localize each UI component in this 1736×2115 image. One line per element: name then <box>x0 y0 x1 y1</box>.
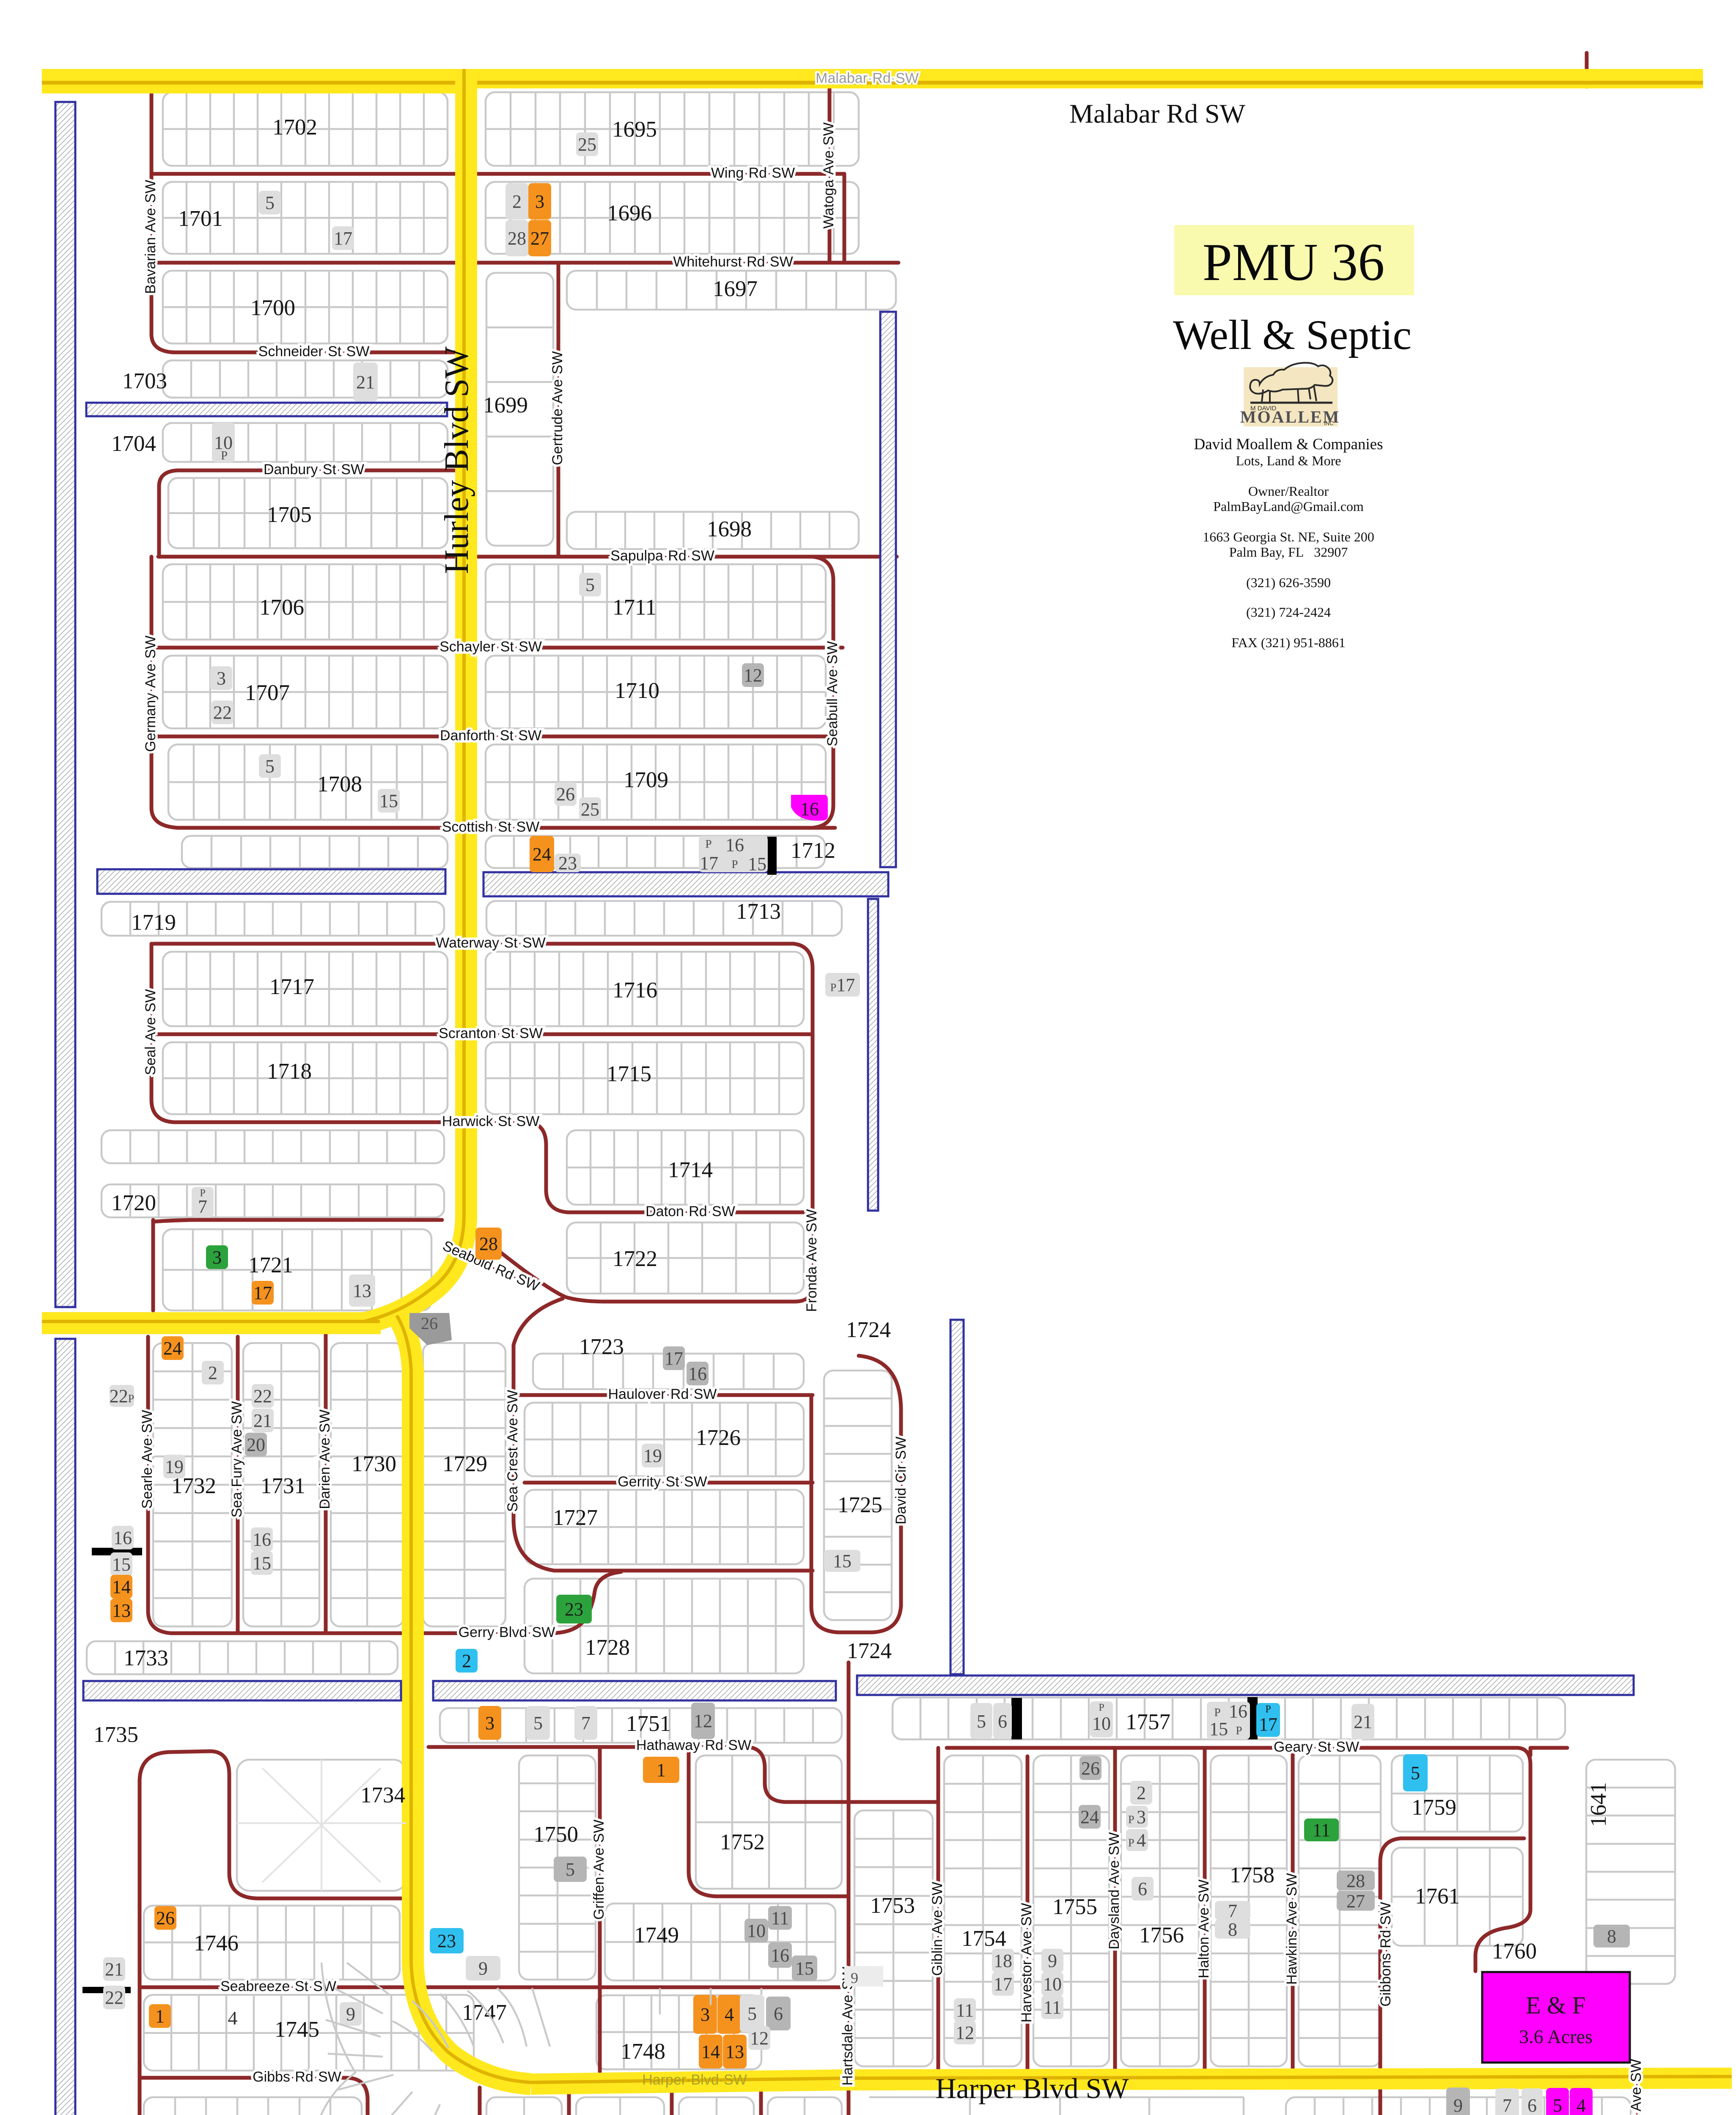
svg-text:Daton·Rd·SW: Daton·Rd·SW <box>646 1203 735 1220</box>
svg-text:17: 17 <box>1259 1714 1277 1735</box>
svg-text:24: 24 <box>163 1338 182 1359</box>
svg-text:1711: 1711 <box>613 595 656 620</box>
svg-text:Danforth·St·SW: Danforth·St·SW <box>440 728 541 744</box>
svg-text:22: 22 <box>213 702 232 723</box>
svg-text:7: 7 <box>1228 1901 1237 1921</box>
svg-text:1735: 1735 <box>93 1722 138 1747</box>
svg-text:5: 5 <box>977 1711 986 1732</box>
svg-text:23: 23 <box>565 1599 583 1620</box>
svg-text:INC: INC <box>1324 420 1333 426</box>
svg-text:Malabar Rd SW: Malabar Rd SW <box>1069 99 1246 129</box>
svg-text:1750: 1750 <box>533 1822 578 1847</box>
svg-text:Gibbons·Rd·SW: Gibbons·Rd·SW <box>1378 1902 1394 2007</box>
svg-text:David Moallem & Companies: David Moallem & Companies <box>1194 436 1383 453</box>
svg-text:9: 9 <box>1048 1950 1057 1971</box>
svg-text:11: 11 <box>1044 1997 1061 2018</box>
svg-text:(321) 724-2424: (321) 724-2424 <box>1246 604 1331 620</box>
svg-text:5: 5 <box>585 574 595 595</box>
svg-text:Well & Septic: Well & Septic <box>1173 311 1412 358</box>
svg-text:PMU 36: PMU 36 <box>1203 233 1385 292</box>
svg-text:1715: 1715 <box>607 1062 651 1086</box>
svg-text:P: P <box>1265 1704 1271 1715</box>
svg-text:6: 6 <box>1138 1879 1147 1899</box>
svg-text:1710: 1710 <box>615 678 659 703</box>
svg-text:12: 12 <box>694 1711 712 1731</box>
svg-text:11: 11 <box>956 2000 974 2021</box>
svg-text:Gertrude·Ave·SW: Gertrude·Ave·SW <box>549 351 566 465</box>
svg-text:1746: 1746 <box>194 1931 239 1956</box>
svg-text:Germany·Ave·SW: Germany·Ave·SW <box>143 635 159 752</box>
svg-text:1751: 1751 <box>626 1711 671 1736</box>
svg-text:1745: 1745 <box>275 2017 319 2042</box>
svg-text:16: 16 <box>725 835 744 855</box>
svg-text:5: 5 <box>1553 2095 1562 2115</box>
svg-text:Scottish·St·SW: Scottish·St·SW <box>442 819 540 835</box>
svg-text:Harvestor·Ave·SW: Harvestor·Ave·SW <box>1019 1903 1035 2023</box>
svg-text:5: 5 <box>747 2003 757 2024</box>
svg-text:FAX (321) 951-8861: FAX (321) 951-8861 <box>1231 635 1346 650</box>
svg-text:Haulover·Rd·SW: Haulover·Rd·SW <box>608 1386 717 1402</box>
svg-text:11: 11 <box>771 1908 789 1928</box>
svg-text:18: 18 <box>994 1950 1012 1971</box>
svg-text:3: 3 <box>700 2004 710 2025</box>
svg-text:Malabar·Rd·SW: Malabar·Rd·SW <box>816 70 919 86</box>
svg-text:13: 13 <box>112 1600 131 1621</box>
svg-text:5: 5 <box>533 1713 543 1733</box>
svg-text:21: 21 <box>105 1959 124 1980</box>
svg-text:Harper Blvd SW: Harper Blvd SW <box>935 2072 1129 2104</box>
svg-text:Hathaway·Rd·SW: Hathaway·Rd·SW <box>636 1737 751 1753</box>
svg-text:6: 6 <box>998 1711 1007 1732</box>
svg-text:Wing·Rd·SW: Wing·Rd·SW <box>711 165 795 181</box>
svg-text:Whitehurst·Rd·SW: Whitehurst·Rd·SW <box>673 254 793 270</box>
svg-text:1663 Georgia St. NE, Suite 200: 1663 Georgia St. NE, Suite 200 <box>1203 529 1374 544</box>
svg-text:1760: 1760 <box>1492 1939 1537 1964</box>
svg-text:2: 2 <box>462 1651 471 1671</box>
svg-text:1719: 1719 <box>131 910 176 935</box>
svg-text:Gerrity·St·SW: Gerrity·St·SW <box>618 1474 707 1490</box>
svg-text:1754: 1754 <box>961 1926 1006 1951</box>
svg-text:3: 3 <box>535 191 544 212</box>
svg-text:Geary·St·SW: Geary·St·SW <box>1274 1739 1359 1755</box>
svg-text:20: 20 <box>247 1434 265 1455</box>
svg-text:Gerry·Blvd·SW: Gerry·Blvd·SW <box>459 1624 555 1640</box>
svg-text:1757: 1757 <box>1126 1710 1170 1734</box>
svg-text:1641: 1641 <box>1586 1782 1611 1827</box>
svg-text:1716: 1716 <box>613 978 657 1003</box>
svg-text:15: 15 <box>253 1553 271 1574</box>
svg-text:8: 8 <box>1607 1926 1616 1947</box>
svg-text:15: 15 <box>748 854 766 874</box>
svg-text:9: 9 <box>346 2004 355 2024</box>
svg-text:(321) 626-3590: (321) 626-3590 <box>1246 575 1331 590</box>
svg-text:Gibbs·Rd·SW: Gibbs·Rd·SW <box>253 2069 341 2085</box>
svg-text:1: 1 <box>656 1760 666 1780</box>
svg-text:1744: 1744 <box>287 2112 332 2115</box>
svg-text:1723: 1723 <box>579 1335 624 1359</box>
svg-text:1759: 1759 <box>1412 1795 1456 1820</box>
svg-text:Hawkins·Ave·SW: Hawkins·Ave·SW <box>1284 1873 1300 1985</box>
svg-text:P: P <box>1214 1706 1220 1719</box>
svg-text:1728: 1728 <box>585 1635 630 1660</box>
svg-text:PalmBayLand@Gmail.com: PalmBayLand@Gmail.com <box>1213 499 1364 514</box>
svg-text:14: 14 <box>112 1577 131 1597</box>
svg-text:1753: 1753 <box>870 1893 915 1918</box>
svg-text:12: 12 <box>750 2028 769 2049</box>
svg-text:1709: 1709 <box>624 768 668 792</box>
svg-text:14: 14 <box>701 2041 720 2062</box>
svg-text:1718: 1718 <box>267 1059 312 1084</box>
svg-text:1755: 1755 <box>1052 1895 1097 1919</box>
svg-text:1703: 1703 <box>122 369 167 393</box>
svg-text:16: 16 <box>800 799 819 819</box>
svg-text:1699: 1699 <box>483 393 528 418</box>
svg-text:1749: 1749 <box>634 1923 679 1947</box>
svg-text:10: 10 <box>747 1920 766 1941</box>
svg-text:1734: 1734 <box>360 1783 405 1807</box>
svg-text:Sea·Crest·Ave·SW: Sea·Crest·Ave·SW <box>505 1390 521 1512</box>
svg-text:17: 17 <box>665 1348 683 1369</box>
svg-text:25: 25 <box>578 134 596 155</box>
svg-text:24: 24 <box>533 844 551 865</box>
svg-text:1733: 1733 <box>124 1646 168 1670</box>
svg-text:3.6 Acres: 3.6 Acres <box>1519 2026 1593 2047</box>
svg-text:16: 16 <box>253 1529 271 1550</box>
svg-text:1721: 1721 <box>248 1253 293 1277</box>
svg-text:Halton·Ave·SW: Halton·Ave·SW <box>1196 1879 1212 1978</box>
svg-text:7: 7 <box>1503 2095 1512 2115</box>
svg-text:26: 26 <box>556 784 575 805</box>
svg-text:Palm Bay, FL 32907: Palm Bay, FL 32907 <box>1229 544 1348 560</box>
svg-text:21: 21 <box>253 1410 272 1431</box>
svg-text:15: 15 <box>833 1551 852 1571</box>
svg-text:Schneider·St·SW: Schneider·St·SW <box>258 343 370 360</box>
svg-text:Danbury·St·SW: Danbury·St·SW <box>264 461 364 478</box>
svg-text:1725: 1725 <box>838 1493 882 1517</box>
svg-text:16: 16 <box>113 1527 132 1548</box>
svg-text:12: 12 <box>956 2022 974 2043</box>
svg-text:28: 28 <box>508 228 526 249</box>
svg-text:28: 28 <box>1346 1871 1365 1891</box>
svg-text:19: 19 <box>643 1445 662 1466</box>
svg-text:17: 17 <box>334 228 352 249</box>
svg-text:Lots, Land & More: Lots, Land & More <box>1236 453 1341 468</box>
svg-text:1700: 1700 <box>250 296 295 320</box>
svg-text:23: 23 <box>558 853 577 873</box>
svg-text:15: 15 <box>795 1958 814 1979</box>
svg-text:Sea·Fury·Ave·SW: Sea·Fury·Ave·SW <box>229 1401 245 1517</box>
svg-text:1696: 1696 <box>607 201 652 225</box>
svg-text:26: 26 <box>1081 1758 1100 1779</box>
svg-text:Watoga·Ave·SW: Watoga·Ave·SW <box>821 122 837 228</box>
svg-text:David·Cir·SW: David·Cir·SW <box>893 1437 909 1524</box>
svg-text:2: 2 <box>512 191 522 212</box>
svg-text:Sapulpa·Rd·SW: Sapulpa·Rd·SW <box>610 548 714 564</box>
svg-text:P: P <box>705 838 711 850</box>
svg-text:3: 3 <box>217 668 226 689</box>
svg-text:1695: 1695 <box>612 117 657 142</box>
svg-text:1722: 1722 <box>613 1247 657 1271</box>
svg-text:P: P <box>1099 1702 1104 1713</box>
svg-text:1730: 1730 <box>352 1452 396 1476</box>
svg-text:16: 16 <box>771 1945 789 1966</box>
svg-text:27: 27 <box>530 228 549 249</box>
svg-text:1: 1 <box>155 2006 165 2027</box>
svg-text:1761: 1761 <box>1415 1884 1460 1909</box>
svg-text:Seabull·Ave·SW: Seabull·Ave·SW <box>824 641 841 747</box>
svg-text:17: 17 <box>700 853 718 873</box>
svg-text:9: 9 <box>1453 2095 1463 2115</box>
svg-text:Darien·Ave·SW: Darien·Ave·SW <box>317 1409 333 1509</box>
svg-text:15: 15 <box>1209 1719 1228 1739</box>
svg-text:28: 28 <box>479 1233 498 1254</box>
svg-text:4: 4 <box>1577 2095 1586 2115</box>
svg-text:Owner/Realtor: Owner/Realtor <box>1248 483 1329 499</box>
svg-text:Harper·Blvd·SW: Harper·Blvd·SW <box>642 2072 747 2088</box>
svg-text:1726: 1726 <box>696 1426 741 1450</box>
svg-text:Dalhart·Ave·SW: Dalhart·Ave·SW <box>1628 2059 1644 2115</box>
svg-text:13: 13 <box>725 2041 744 2062</box>
svg-text:23: 23 <box>437 1931 456 1951</box>
svg-text:1714: 1714 <box>668 1158 713 1182</box>
svg-text:9: 9 <box>478 1958 488 1979</box>
svg-text:1724: 1724 <box>847 1639 892 1663</box>
svg-text:8: 8 <box>1228 1919 1237 1940</box>
svg-text:10: 10 <box>1043 1974 1062 1994</box>
svg-text:1698: 1698 <box>707 517 752 541</box>
svg-text:17: 17 <box>994 1974 1012 1994</box>
svg-text:21: 21 <box>1354 1711 1372 1732</box>
svg-text:1720: 1720 <box>111 1191 156 1215</box>
svg-text:1756: 1756 <box>1139 1923 1184 1947</box>
svg-text:1712: 1712 <box>791 838 835 863</box>
svg-text:3: 3 <box>485 1713 494 1733</box>
svg-text:Fronda·Ave·SW: Fronda·Ave·SW <box>804 1209 820 1312</box>
svg-text:22: 22 <box>105 1987 124 2008</box>
svg-text:2: 2 <box>1137 1783 1146 1803</box>
svg-text:3: 3 <box>212 1247 222 1268</box>
svg-text:16: 16 <box>1229 1701 1247 1722</box>
svg-text:Scranton·St·SW: Scranton·St·SW <box>439 1025 543 1041</box>
svg-text:1727: 1727 <box>553 1505 598 1530</box>
svg-text:5: 5 <box>265 756 275 777</box>
svg-text:27: 27 <box>1346 1891 1365 1912</box>
svg-text:6: 6 <box>1527 2095 1537 2115</box>
svg-text:7: 7 <box>581 1713 591 1733</box>
svg-text:Schayler·St·SW: Schayler·St·SW <box>439 639 542 655</box>
svg-text:Bavarian·Ave·SW: Bavarian·Ave·SW <box>143 180 159 294</box>
svg-text:19: 19 <box>165 1456 184 1477</box>
svg-text:P: P <box>731 858 738 871</box>
svg-text:1762: 1762 <box>1401 2110 1445 2115</box>
svg-text:21: 21 <box>356 372 375 393</box>
svg-text:1701: 1701 <box>178 206 223 231</box>
svg-text:1752: 1752 <box>720 1830 765 1854</box>
svg-text:1705: 1705 <box>267 503 312 527</box>
svg-text:15: 15 <box>379 791 398 811</box>
svg-text:5: 5 <box>1411 1763 1420 1783</box>
svg-text:26: 26 <box>156 1908 175 1928</box>
svg-text:1706: 1706 <box>259 595 304 620</box>
svg-text:17: 17 <box>253 1283 272 1303</box>
svg-text:7: 7 <box>198 1196 207 1217</box>
svg-text:1707: 1707 <box>245 681 290 705</box>
svg-text:E & F: E & F <box>1526 1991 1586 2019</box>
svg-text:9: 9 <box>851 1969 858 1986</box>
svg-text:1713: 1713 <box>736 899 781 924</box>
svg-text:1748: 1748 <box>621 2039 665 2064</box>
svg-text:5: 5 <box>265 192 275 213</box>
svg-text:Giblin·Ave·SW: Giblin·Ave·SW <box>929 1882 945 1976</box>
svg-text:1697: 1697 <box>713 277 758 301</box>
svg-text:1747: 1747 <box>462 2000 507 2025</box>
svg-text:1708: 1708 <box>317 772 362 797</box>
svg-text:1724: 1724 <box>846 1318 891 1342</box>
svg-text:26: 26 <box>421 1314 438 1333</box>
svg-text:Seal·Ave·SW: Seal·Ave·SW <box>143 989 159 1075</box>
svg-text:1704: 1704 <box>111 431 156 456</box>
svg-text:Hurley Blvd SW: Hurley Blvd SW <box>438 346 475 574</box>
svg-text:4: 4 <box>228 2007 238 2029</box>
svg-text:Harwick·St·SW: Harwick·St·SW <box>442 1113 539 1129</box>
svg-text:15: 15 <box>112 1554 131 1575</box>
svg-text:12: 12 <box>744 665 762 686</box>
svg-text:6: 6 <box>774 2003 783 2024</box>
svg-text:1729: 1729 <box>442 1452 487 1476</box>
svg-text:11: 11 <box>1313 1820 1330 1840</box>
svg-text:13: 13 <box>353 1280 371 1301</box>
svg-text:1717: 1717 <box>269 975 314 999</box>
svg-text:22: 22 <box>253 1386 272 1406</box>
svg-text:4: 4 <box>725 2004 734 2025</box>
svg-text:P: P <box>1236 1724 1242 1737</box>
svg-text:5: 5 <box>566 1859 575 1880</box>
svg-text:Griffen·Ave·SW: Griffen·Ave·SW <box>591 1820 607 1920</box>
svg-text:1702: 1702 <box>272 115 317 140</box>
svg-text:10: 10 <box>1092 1713 1111 1734</box>
svg-text:16: 16 <box>688 1363 707 1384</box>
svg-text:25: 25 <box>581 799 599 820</box>
svg-text:24: 24 <box>1080 1807 1099 1827</box>
svg-text:P: P <box>221 449 228 462</box>
svg-text:Daysland·Ave·SW: Daysland·Ave·SW <box>1106 1832 1122 1949</box>
svg-text:2: 2 <box>208 1362 217 1383</box>
svg-text:Seabreeze·St·SW: Seabreeze·St·SW <box>220 1978 336 1994</box>
svg-text:1758: 1758 <box>1230 1863 1275 1887</box>
svg-text:Searle·Ave·SW: Searle·Ave·SW <box>139 1410 155 1509</box>
svg-text:1731: 1731 <box>261 1474 305 1498</box>
svg-text:Waterway·St·SW: Waterway·St·SW <box>436 935 545 951</box>
